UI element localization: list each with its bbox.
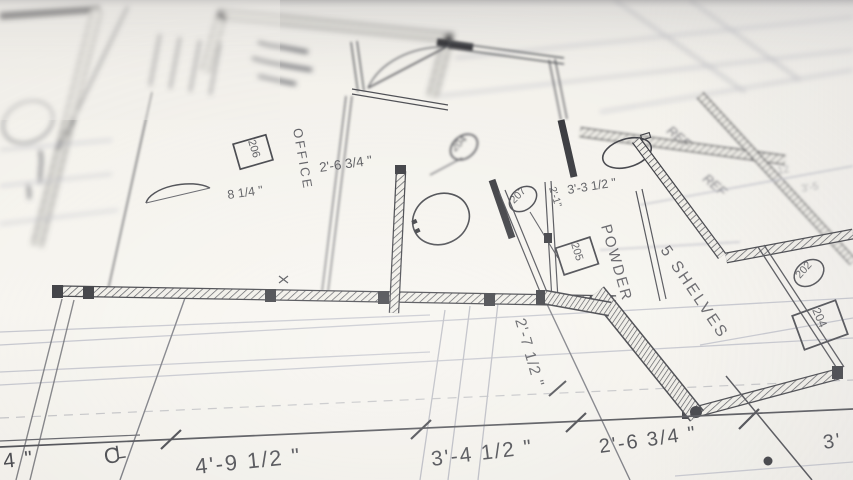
floor-plan-svg: 204 REF REF 12 3'-5 xyxy=(0,0,853,480)
blueprint-photo: 204 REF REF 12 3'-5 xyxy=(0,0,853,480)
glow-overlay xyxy=(0,0,853,480)
